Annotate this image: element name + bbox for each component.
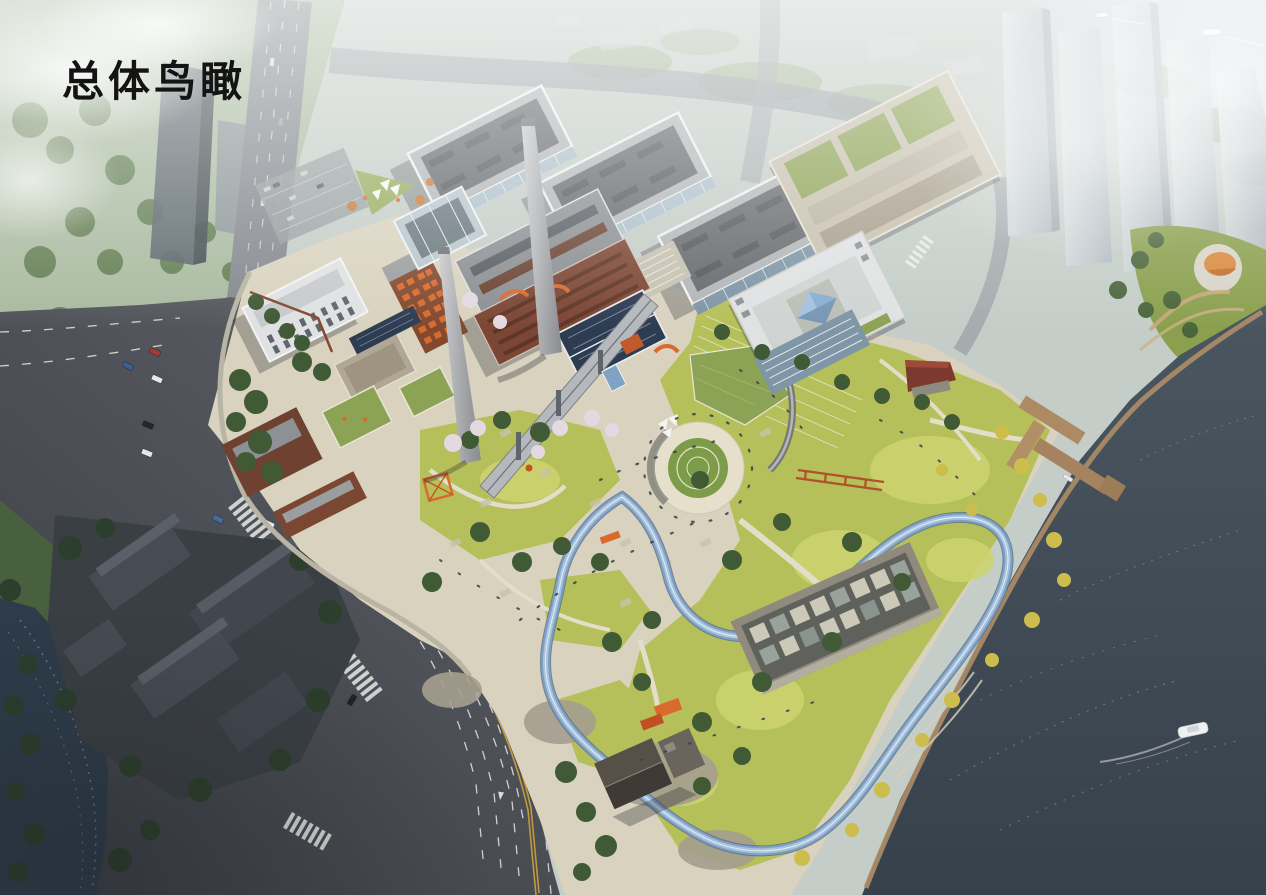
page-title: 总体鸟瞰: [62, 48, 246, 109]
aerial-rendering: 总体鸟瞰: [0, 0, 1266, 895]
scene-svg: [0, 0, 1266, 895]
